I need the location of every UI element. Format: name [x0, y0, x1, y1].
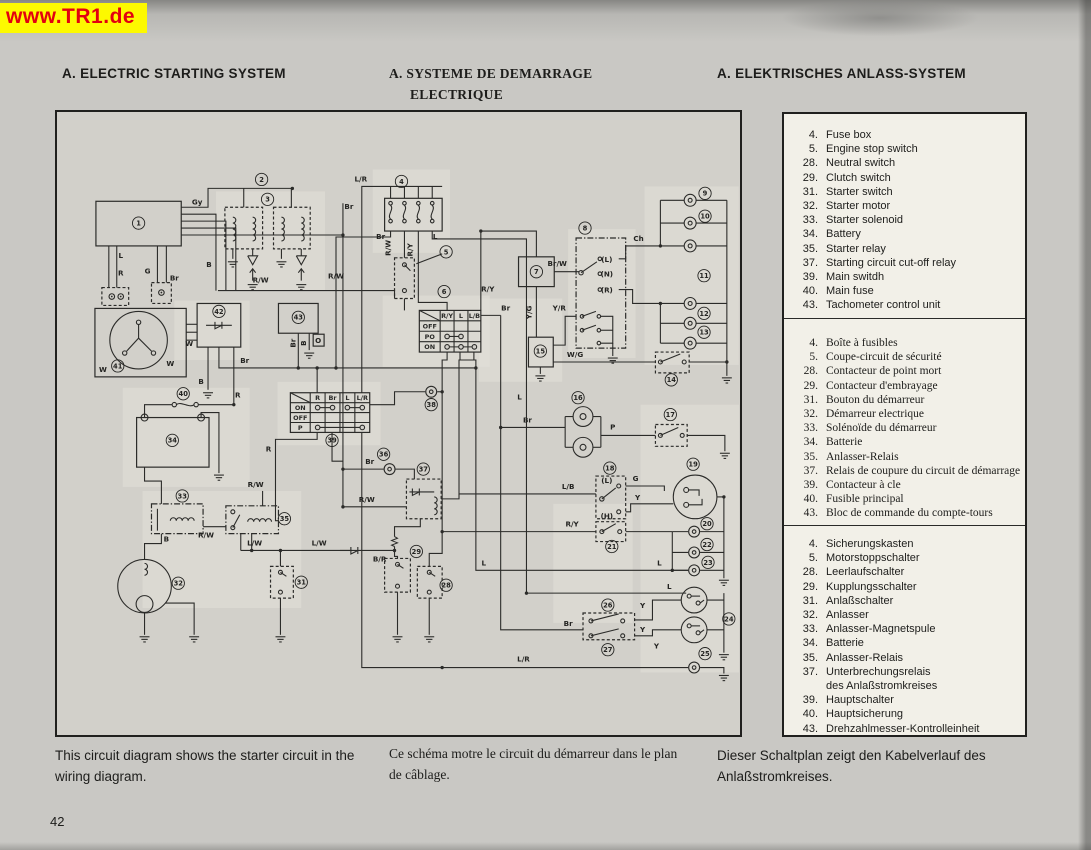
caption-german: Dieser Schaltplan zeigt den Kabelverlauf…	[717, 746, 1035, 788]
legend-item: 29.Kupplungsschalter	[794, 580, 1021, 594]
component-callout: 15	[534, 345, 546, 357]
legend-item: des Anlaßstromkreises	[794, 679, 1021, 693]
legend-item: 34.Batterie	[794, 435, 1021, 449]
svg-text:5: 5	[444, 248, 449, 256]
wire-label: R	[118, 269, 124, 278]
legend-item: 43.Tachometer control unit	[794, 298, 1021, 312]
component-callout: 29	[410, 545, 422, 557]
legend-item-number: 33.	[794, 213, 818, 227]
legend-item-label: Kupplungsschalter	[826, 580, 917, 594]
caption-english: This circuit diagram shows the starter c…	[55, 746, 377, 788]
page-number: 42	[50, 814, 64, 829]
legend-item-number: 39.	[794, 270, 818, 284]
legend-item-label: Batterie	[826, 435, 862, 449]
legend-item: 5.Coupe-circuit de sécurité	[794, 350, 1021, 364]
legend-item-number: 34.	[794, 636, 818, 650]
wire-label: W/G	[567, 350, 583, 359]
wire-label: Y	[653, 642, 660, 651]
legend-item: 37.Relais de coupure du circuit de démar…	[794, 464, 1021, 478]
table-col-header: L/R	[357, 394, 368, 402]
legend-item-number: 4.	[794, 336, 818, 350]
legend-item-label: Motorstoppschalter	[826, 551, 920, 565]
legend-item: 35.Anlasser-Relais	[794, 450, 1021, 464]
legend-item-label: Contacteur d'embrayage	[826, 379, 938, 393]
legend-item-label: des Anlaßstromkreises	[826, 679, 937, 693]
component-callout: 40	[177, 388, 189, 400]
wire-label: Br	[365, 457, 374, 466]
legend-item-label: Sicherungskasten	[826, 537, 913, 551]
wire-label: G	[145, 267, 151, 276]
wire-label: Br	[376, 232, 385, 241]
svg-text:32: 32	[174, 580, 184, 588]
legend-item: 32.Anlasser	[794, 608, 1021, 622]
svg-text:41: 41	[113, 362, 123, 370]
legend-item-number: 28.	[794, 156, 818, 170]
legend-item-number: 33.	[794, 421, 818, 435]
legend-item: 4.Boîte à fusibles	[794, 336, 1021, 350]
legend-item: 40.Fusible principal	[794, 492, 1021, 506]
legend-item-number: 29.	[794, 580, 818, 594]
table-col-header: R/Y	[441, 312, 453, 320]
legend-item-label: Leerlaufschalter	[826, 565, 904, 579]
svg-text:24: 24	[724, 615, 734, 623]
component-callout: 22	[701, 538, 713, 550]
legend-item-label: Anlasser	[826, 608, 869, 622]
svg-text:37: 37	[419, 466, 429, 474]
svg-text:21: 21	[607, 543, 617, 551]
svg-text:3: 3	[265, 196, 270, 204]
legend-item: 33.Solénoïde du démarreur	[794, 421, 1021, 435]
component-callout: 16	[572, 392, 584, 404]
legend-item-label: Fusible principal	[826, 492, 904, 506]
header-english: A. ELECTRIC STARTING SYSTEM	[62, 66, 286, 81]
wire-label: Br	[501, 303, 510, 312]
legend-item-label: Relais de coupure du circuit de démarrag…	[826, 464, 1020, 478]
component-callout: 31	[295, 576, 307, 588]
wire-label: B	[198, 377, 203, 386]
legend-item-number: 40.	[794, 284, 818, 298]
svg-text:38: 38	[427, 401, 437, 409]
wire-label: L	[517, 393, 522, 402]
svg-text:12: 12	[699, 310, 709, 318]
legend-item-number: 39.	[794, 693, 818, 707]
svg-text:15: 15	[536, 347, 546, 355]
legend-item-label: Main switdh	[826, 270, 884, 284]
svg-text:20: 20	[702, 520, 712, 528]
wire-label: R/W	[253, 276, 269, 285]
table-col-header: R	[315, 394, 320, 402]
legend-item-number: 32.	[794, 407, 818, 421]
legend-item-label: Main fuse	[826, 284, 874, 298]
legend-item-number: 32.	[794, 199, 818, 213]
component-callout: 43	[292, 311, 304, 323]
legend-item-number: 37.	[794, 256, 818, 270]
wire-label: Br	[170, 274, 179, 283]
component-callout: 11	[698, 270, 710, 282]
legend-item-label: Unterbrechungsrelais	[826, 665, 931, 679]
legend-item: 37.Starting circuit cut-off relay	[794, 256, 1021, 270]
legend-item: 29.Clutch switch	[794, 171, 1021, 185]
component-callout: 27	[602, 644, 614, 656]
component-callout: 2	[255, 173, 267, 185]
legend-item-label: Tachometer control unit	[826, 298, 940, 312]
legend-item-number: 40.	[794, 492, 818, 506]
legend-item: 39.Contacteur à cle	[794, 478, 1021, 492]
legend-item-label: Contacteur de point mort	[826, 364, 941, 378]
legend-item-number: 33.	[794, 622, 818, 636]
legend-item-label: Starter relay	[826, 242, 886, 256]
component-callout: 23	[702, 556, 714, 568]
wire-label: (H)	[601, 512, 613, 521]
legend-item-label: Hauptsicherung	[826, 707, 903, 721]
svg-text:10: 10	[700, 213, 710, 221]
legend-item-number: 4.	[794, 128, 818, 142]
component-callout: 32	[172, 577, 184, 589]
legend-item-label: Starter switch	[826, 185, 893, 199]
legend-item-label: Solénoïde du démarreur	[826, 421, 937, 435]
legend-item-label: Anlaßschalter	[826, 594, 893, 608]
legend-item-number: 39.	[794, 478, 818, 492]
wire-label: L/R	[517, 655, 530, 664]
legend-list-german: 4.Sicherungskasten5.Motorstoppschalter28…	[794, 537, 1021, 736]
component-callout: 8	[579, 222, 591, 234]
svg-text:42: 42	[214, 308, 224, 316]
legend-item: 28.Leerlaufschalter	[794, 565, 1021, 579]
component-callout: 25	[699, 647, 711, 659]
svg-text:27: 27	[603, 646, 613, 654]
wire-label: L	[433, 232, 438, 241]
legend-item-number: 5.	[794, 551, 818, 565]
component-callout: 1	[132, 217, 144, 229]
wire-label: Br/W	[548, 259, 568, 268]
site-watermark: www.TR1.de	[0, 3, 147, 33]
wire-label: L/R	[354, 174, 367, 183]
component-callout: 42	[213, 305, 225, 317]
wire-label: (L)	[601, 255, 612, 264]
component-callout: 33	[176, 490, 188, 502]
legend-item: 28.Neutral switch	[794, 156, 1021, 170]
wire-label: B/R	[373, 554, 387, 563]
legend-item-label: Anlasser-Magnetspule	[826, 622, 935, 636]
wire-label: O	[315, 336, 321, 345]
legend-item: 33.Starter solenoid	[794, 213, 1021, 227]
svg-text:8: 8	[583, 224, 588, 232]
legend-item-number: 34.	[794, 435, 818, 449]
legend-item: 31.Starter switch	[794, 185, 1021, 199]
wire-label: B	[164, 535, 169, 544]
svg-text:31: 31	[297, 579, 307, 587]
component-callout: 34	[166, 434, 178, 446]
legend-item-number: 35.	[794, 450, 818, 464]
table-row-header: P	[298, 424, 303, 432]
legend-item: 34.Batterie	[794, 636, 1021, 650]
legend-item-number: 35.	[794, 242, 818, 256]
svg-text:11: 11	[699, 272, 709, 280]
legend-item-number: 43.	[794, 506, 818, 520]
wire-label: W	[185, 339, 193, 348]
component-callout: 19	[687, 458, 699, 470]
legend-item-label: Starting circuit cut-off relay	[826, 256, 956, 270]
wire-label: R/Y	[481, 285, 495, 294]
wire-label: R	[266, 444, 272, 453]
wire-label: Y	[634, 493, 641, 502]
legend-item-number: 34.	[794, 227, 818, 241]
wire-label: (N)	[601, 270, 613, 279]
wire-label: Ch	[633, 234, 643, 243]
legend-item-number: 37.	[794, 464, 818, 478]
table-row-header: ON	[424, 343, 435, 351]
legend-item-number: 43.	[794, 298, 818, 312]
wire-label: Br	[344, 202, 353, 211]
wire-label: B	[206, 260, 211, 269]
component-callout: 14	[665, 374, 677, 386]
wire-label: P	[610, 422, 615, 431]
legend-item-label: Coupe-circuit de sécurité	[826, 350, 942, 364]
svg-text:35: 35	[280, 515, 290, 523]
wire-label: Y/R	[552, 303, 567, 312]
svg-text:33: 33	[178, 492, 188, 500]
component-callout: 13	[698, 326, 710, 338]
legend-list-english: 4.Fuse box5.Engine stop switch28.Neutral…	[794, 128, 1021, 313]
wire-label: R/W	[328, 272, 344, 281]
wire-label: L	[667, 582, 672, 591]
wire-label: Br	[240, 356, 249, 365]
table-row-header: OFF	[293, 414, 307, 422]
legend-item: 43.Drehzahlmesser-Kontrolleinheit	[794, 722, 1021, 736]
wire-label: R/Y	[565, 520, 579, 529]
legend-item-label: Fuse box	[826, 128, 871, 142]
wire-label: L/W	[312, 539, 327, 548]
component-callout: 24	[723, 613, 735, 625]
wire-label: Gy	[192, 197, 203, 206]
svg-text:16: 16	[573, 394, 583, 402]
wire-label: L	[482, 558, 487, 567]
legend-item-number: 37.	[794, 665, 818, 679]
legend-item: 35.Anlasser-Relais	[794, 651, 1021, 665]
wire-label: R/W	[359, 495, 375, 504]
legend-item-label: Anlasser-Relais	[826, 450, 899, 464]
wire-label: L	[657, 558, 662, 567]
component-callout: 35	[278, 513, 290, 525]
legend-item-label: Battery	[826, 227, 861, 241]
component-callout: 36	[377, 448, 389, 460]
svg-text:13: 13	[699, 329, 709, 337]
legend-item: 40.Main fuse	[794, 284, 1021, 298]
component-callout: 28	[440, 579, 452, 591]
wire-label: L	[118, 251, 123, 260]
legend-item: 5.Motorstoppschalter	[794, 551, 1021, 565]
legend-item-label: Bloc de commande du compte-tours	[826, 506, 993, 520]
legend-item: 40.Hauptsicherung	[794, 707, 1021, 721]
legend-item-number	[794, 679, 818, 693]
legend-item-label: Démarreur electrique	[826, 407, 924, 421]
legend-item-number: 28.	[794, 364, 818, 378]
wire-label: R/W	[198, 531, 214, 540]
component-callout: 41	[112, 360, 124, 372]
table-row-header: OFF	[423, 322, 437, 330]
wire-label: Y	[639, 625, 646, 634]
legend-item-number: 31.	[794, 185, 818, 199]
legend-item-number: 31.	[794, 393, 818, 407]
svg-text:9: 9	[703, 190, 708, 198]
component-callout: 39	[326, 434, 338, 446]
component-callout: 12	[698, 307, 710, 319]
legend-separator	[784, 318, 1025, 319]
legend-item: 39.Hauptschalter	[794, 693, 1021, 707]
legend-item: 37.Unterbrechungsrelais	[794, 665, 1021, 679]
svg-text:19: 19	[688, 461, 698, 469]
svg-text:36: 36	[379, 451, 389, 459]
component-callout: 38	[425, 398, 437, 410]
svg-text:25: 25	[700, 650, 710, 658]
legend-item: 4.Fuse box	[794, 128, 1021, 142]
legend-item-number: 40.	[794, 707, 818, 721]
wire-label: G	[633, 474, 639, 483]
legend-item-number: 31.	[794, 594, 818, 608]
legend-item-number: 29.	[794, 379, 818, 393]
svg-text:40: 40	[179, 390, 189, 398]
table-col-header: Br	[328, 394, 337, 402]
legend-item: 28.Contacteur de point mort	[794, 364, 1021, 378]
legend-item-label: Contacteur à cle	[826, 478, 901, 492]
wire-label: L/B	[562, 482, 575, 491]
component-callout: 26	[602, 599, 614, 611]
legend-item-label: Boîte à fusibles	[826, 336, 898, 350]
component-callout: 10	[699, 210, 711, 222]
component-callout: 6	[438, 285, 450, 297]
header-french-line2: ELECTRIQUE	[410, 87, 503, 103]
wire-label: R/W	[248, 480, 264, 489]
legend-item-label: Drehzahlmesser-Kontrolleinheit	[826, 722, 979, 736]
component-callout: 17	[664, 408, 676, 420]
svg-text:26: 26	[603, 601, 613, 609]
table-row-header: ON	[295, 404, 306, 412]
svg-text:22: 22	[702, 541, 712, 549]
legend-item: 39.Main switdh	[794, 270, 1021, 284]
legend-item: 33.Anlasser-Magnetspule	[794, 622, 1021, 636]
wire-label: L/W	[247, 539, 262, 548]
svg-text:1: 1	[136, 219, 141, 227]
wire-label: Br	[523, 416, 532, 425]
legend-item-label: Hauptschalter	[826, 693, 894, 707]
legend-item-number: 28.	[794, 565, 818, 579]
table-col-header: L/B	[469, 312, 480, 320]
svg-text:28: 28	[441, 582, 451, 590]
legend-item: 29.Contacteur d'embrayage	[794, 379, 1021, 393]
svg-text:39: 39	[327, 437, 337, 445]
header-german: A. ELEKTRISCHES ANLASS-SYSTEM	[717, 66, 966, 81]
wire-label: (L)	[601, 476, 612, 485]
wire-label: Br	[288, 338, 297, 347]
wire-label: Y/G	[524, 305, 533, 320]
component-callout: 18	[604, 462, 616, 474]
circuit-diagram-panel: R/YLL/BOFFPOONRBrLL/RONOFFPGyLRGBrBWWWBR…	[55, 110, 742, 737]
legend-item: 5.Engine stop switch	[794, 142, 1021, 156]
table-col-header: L	[459, 312, 463, 320]
svg-text:2: 2	[259, 176, 264, 184]
component-callout: 37	[417, 463, 429, 475]
svg-text:34: 34	[168, 437, 178, 445]
caption-french: Ce schéma motre le circuit du démarreur …	[389, 744, 689, 786]
legend-item: 43.Bloc de commande du compte-tours	[794, 506, 1021, 520]
legend-item-label: Starter motor	[826, 199, 890, 213]
component-callout: 20	[701, 518, 713, 530]
svg-text:18: 18	[605, 465, 615, 473]
legend-item: 35.Starter relay	[794, 242, 1021, 256]
wire-label: B	[299, 340, 308, 345]
legend-separator	[784, 525, 1025, 526]
svg-text:43: 43	[294, 314, 304, 322]
legend-item-label: Engine stop switch	[826, 142, 918, 156]
table-col-header: L	[345, 394, 349, 402]
legend-item-number: 32.	[794, 608, 818, 622]
legend-item-number: 5.	[794, 142, 818, 156]
svg-text:4: 4	[399, 178, 404, 186]
legend-item: 4.Sicherungskasten	[794, 537, 1021, 551]
legend-item-number: 4.	[794, 537, 818, 551]
wire-label: Br	[564, 619, 573, 628]
legend-item-label: Batterie	[826, 636, 864, 650]
wire-label: Y	[639, 601, 646, 610]
wire-label: R	[235, 391, 241, 400]
legend-item-number: 43.	[794, 722, 818, 736]
legend-item-number: 35.	[794, 651, 818, 665]
legend-item: 31.Bouton du démarreur	[794, 393, 1021, 407]
wire-label: W	[99, 365, 107, 374]
header-french-line1: A. SYSTEME DE DEMARRAGE	[389, 66, 592, 82]
svg-text:23: 23	[703, 559, 713, 567]
legend-item: 32.Starter motor	[794, 199, 1021, 213]
legend-item: 34.Battery	[794, 227, 1021, 241]
svg-text:29: 29	[412, 548, 422, 556]
component-callout: 7	[530, 266, 542, 278]
legend-list-french: 4.Boîte à fusibles5.Coupe-circuit de séc…	[794, 336, 1021, 521]
legend-item-number: 5.	[794, 350, 818, 364]
legend-item-label: Clutch switch	[826, 171, 891, 185]
scanned-manual-page: www.TR1.de A. ELECTRIC STARTING SYSTEM A…	[0, 0, 1091, 850]
legend-panel: 4.Fuse box5.Engine stop switch28.Neutral…	[782, 112, 1027, 737]
legend-item-label: Anlasser-Relais	[826, 651, 903, 665]
legend-item-label: Starter solenoid	[826, 213, 903, 227]
legend-item-label: Bouton du démarreur	[826, 393, 924, 407]
component-callout: 21	[606, 540, 618, 552]
svg-text:17: 17	[666, 411, 676, 419]
legend-item-label: Neutral switch	[826, 156, 895, 170]
wire-label: R/Y	[405, 242, 414, 256]
svg-text:14: 14	[667, 376, 677, 384]
table-row-header: PO	[425, 333, 436, 341]
svg-text:6: 6	[442, 288, 447, 296]
wire-label: R/W	[384, 240, 393, 256]
legend-item: 32.Démarreur electrique	[794, 407, 1021, 421]
wire-label: W	[166, 359, 174, 368]
circuit-schematic: R/YLL/BOFFPOONRBrLL/RONOFFPGyLRGBrBWWWBR…	[57, 112, 739, 734]
photocopy-highlights	[123, 170, 739, 673]
legend-item: 31.Anlaßschalter	[794, 594, 1021, 608]
svg-text:7: 7	[534, 268, 539, 276]
legend-item-number: 29.	[794, 171, 818, 185]
wire-label: (R)	[601, 286, 613, 295]
